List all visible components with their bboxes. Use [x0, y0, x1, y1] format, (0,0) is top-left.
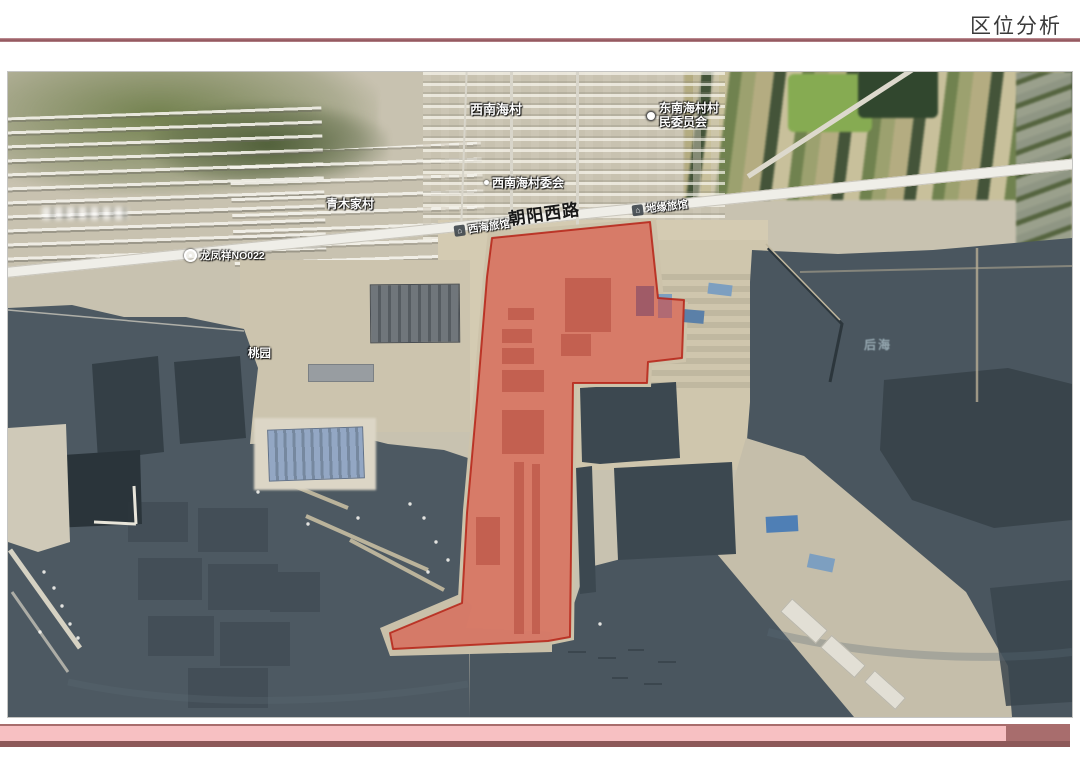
footer-pink-bar — [0, 726, 1006, 741]
header-rule — [0, 38, 1080, 42]
poi-dot-icon — [484, 180, 489, 185]
shop-text: 龙凤祥NO022 — [200, 248, 265, 263]
slide-page: 区位分析 — [0, 0, 1080, 763]
hotel-icon: ⌂ — [454, 224, 466, 236]
poi-marker-icon — [646, 111, 656, 121]
label-village-xinanhai: 西南海村 — [470, 99, 522, 118]
committee-ne-line1: 东南海村村 — [659, 102, 719, 116]
footer-bar — [0, 724, 1070, 747]
highlight-layer — [8, 72, 1072, 717]
hotel-icon: ⌂ — [632, 204, 644, 216]
label-committee-dongnanhai: 东南海村村 民委员会 — [646, 102, 719, 130]
illegible-area-label — [42, 207, 128, 220]
label-committee-xinanhai: 西南海村委会 — [484, 174, 564, 191]
label-sea-area: 后海 — [864, 336, 892, 353]
shop-marker-icon — [184, 249, 197, 262]
label-village-qingmu: 青木家村 — [326, 195, 374, 212]
committee-w-text: 西南海村委会 — [492, 174, 564, 191]
committee-ne-line2: 民委员会 — [659, 116, 719, 130]
label-orchard-taoyuan: 桃园 — [248, 345, 271, 361]
footer-dark-strip — [0, 741, 1070, 747]
satellite-map: 西南海村 东南海村村 民委员会 西南海村委会 青木家村 朝阳西路 ⌂ 西海旅馆 … — [8, 72, 1072, 717]
page-title: 区位分析 — [970, 10, 1062, 40]
label-shop-longfengxiang: 龙凤祥NO022 — [184, 248, 265, 263]
